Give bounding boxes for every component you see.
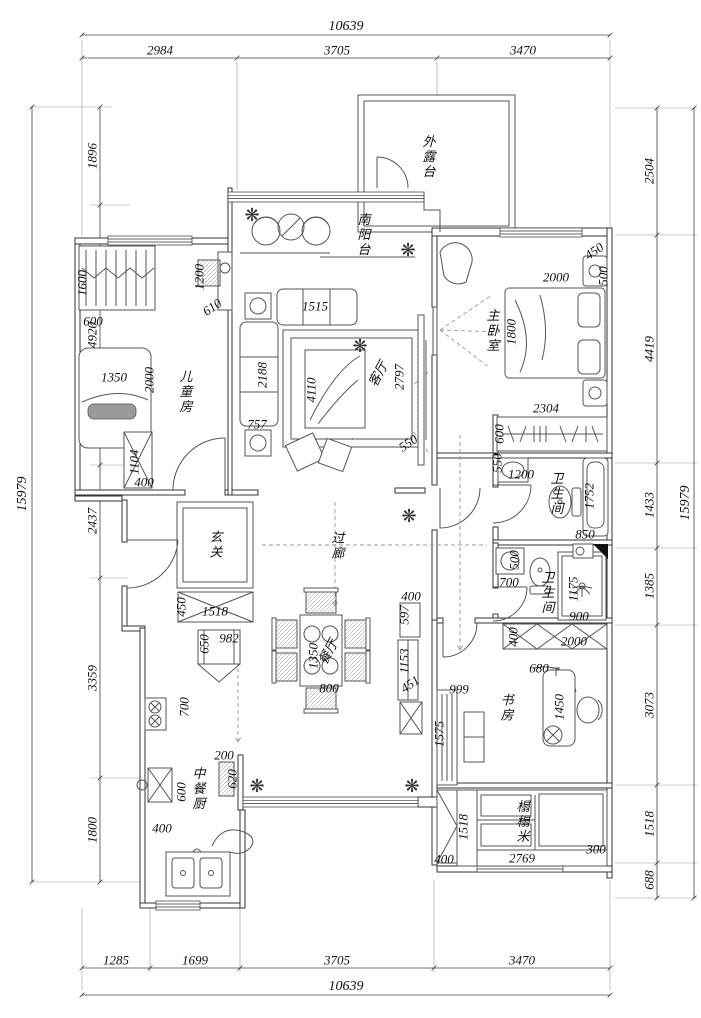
dim-inner: 700: [178, 697, 191, 717]
dim-inner: 2000: [143, 367, 156, 393]
dim-inner: 700: [499, 576, 519, 589]
dim-inner: 850: [575, 528, 595, 541]
dim-inner: 400: [401, 590, 421, 603]
dim-right-seg: 1433: [643, 492, 656, 518]
dim-top-total: 10639: [329, 20, 364, 34]
furniture-master: [440, 243, 607, 451]
dim-inner: 1175: [567, 576, 580, 601]
dim-top-seg: 3705: [324, 44, 350, 57]
furniture-kitchen: [137, 630, 253, 896]
plant-icon: ❋: [244, 205, 259, 225]
dim-inner: 600: [175, 782, 188, 802]
dim-inner: 1200: [508, 468, 534, 481]
terrace-door: [377, 157, 408, 188]
dim-inner: 2000: [543, 271, 569, 284]
dim-inner: 400: [507, 627, 520, 647]
bath-upper-door: [493, 485, 531, 523]
dining-window: [243, 797, 418, 807]
dim-inner: 2000: [561, 635, 587, 648]
dim-inner: 200: [214, 749, 234, 762]
dim-left-seg: 2437: [86, 508, 99, 534]
dim-top-seg: 3470: [510, 44, 536, 57]
dim-left-seg: 1896: [86, 143, 99, 169]
floor-plan-drawing: ❋ ❋ ❋ ❋ ❋ ❋: [0, 0, 701, 1018]
dim-inner: 1600: [76, 270, 89, 296]
dim-right-seg: 688: [643, 870, 656, 890]
room-label-study: 书房: [500, 693, 513, 723]
dim-top-seg: 2984: [147, 44, 173, 57]
dim-right-seg: 1385: [643, 573, 656, 599]
dim-inner: 450: [175, 597, 188, 617]
floor-plan: ❋ ❋ ❋ ❋ ❋ ❋ 10639 2984 3705 3470 1285 16…: [0, 0, 701, 1018]
plant-icon: ❋: [249, 776, 264, 796]
kids-window: [108, 236, 192, 245]
dim-inner: 1104: [128, 449, 141, 474]
plant-icon: ❋: [400, 240, 415, 260]
dim-left-total: 15979: [16, 477, 30, 512]
dim-bottom-seg: 1285: [103, 954, 129, 967]
dim-right-seg: 3073: [643, 692, 656, 718]
dim-inner: 1515: [302, 300, 328, 313]
dim-inner: 500: [597, 266, 610, 286]
dim-right-seg: 2504: [643, 158, 656, 184]
dim-bottom-seg: 3705: [324, 954, 350, 967]
dim-right-total: 15979: [679, 486, 693, 521]
balcony-sliding-door: [240, 253, 415, 257]
dim-inner: 1350: [101, 371, 127, 384]
furniture-balcony: [252, 214, 330, 245]
kids-door: [173, 438, 225, 490]
plant-icon: ❋: [404, 776, 419, 796]
dim-inner: 1350: [307, 643, 320, 669]
dim-inner: 600: [493, 424, 506, 444]
dim-inner: 400: [434, 853, 454, 866]
dim-right-seg: 4419: [643, 336, 656, 362]
room-label-kitchen: 中餐厨: [192, 767, 205, 812]
room-label-hall: 过廊: [331, 531, 344, 561]
kitchen-window: [156, 901, 200, 910]
dim-inner: 650: [198, 634, 211, 654]
dim-inner: 550: [491, 453, 504, 473]
master-window: [500, 228, 582, 237]
dim-inner: 1752: [583, 483, 596, 509]
dim-inner: 300: [586, 843, 606, 856]
dim-left-seg: 3359: [86, 665, 99, 691]
dim-inner: 1518: [202, 605, 228, 618]
dim-inner: 600: [83, 315, 103, 328]
dim-inner: 4110: [305, 377, 318, 402]
dim-inner: 680: [529, 662, 549, 675]
dim-bottom-total: 10639: [329, 980, 364, 994]
dim-inner: 1450: [553, 694, 566, 720]
dim-inner: 999: [449, 683, 469, 696]
dim-inner: 2797: [393, 364, 406, 390]
dim-inner: 1518: [457, 814, 470, 840]
dim-inner: 2769: [509, 852, 535, 865]
dim-left-seg: 1800: [86, 817, 99, 843]
dim-right-seg: 1518: [643, 811, 656, 837]
dim-inner: 620: [226, 769, 239, 789]
plant-icon: ❋: [352, 336, 367, 356]
room-label-master: 主卧室: [486, 309, 499, 354]
dim-inner: 1800: [505, 319, 518, 345]
dim-inner: 1200: [193, 264, 206, 290]
dim-inner: 597: [398, 605, 411, 625]
dim-bottom-seg: 1699: [182, 954, 208, 967]
room-label-entry: 玄关: [209, 530, 222, 560]
room-label-tatami: 榻榻米: [516, 800, 529, 845]
dim-inner: 400: [152, 822, 172, 835]
dim-inner: 1153: [398, 648, 411, 673]
room-label-balcony: 南阳台: [357, 213, 370, 258]
room-label-kids: 儿童房: [179, 370, 192, 415]
dim-inner: 1575: [433, 721, 446, 747]
master-door: [433, 307, 437, 355]
dim-bottom-seg: 3470: [509, 954, 535, 967]
dim-inner: 900: [569, 610, 589, 623]
dim-inner: 2304: [533, 402, 559, 415]
room-label-bath-lower: 卫生间: [541, 571, 554, 616]
dim-inner: 500: [508, 550, 521, 570]
room-label-terrace: 外露台: [422, 135, 435, 180]
dim-inner: 757: [247, 418, 267, 431]
dim-inner: 400: [134, 476, 154, 489]
plant-icon: ❋: [401, 506, 416, 526]
entry-door: [127, 540, 178, 588]
dim-inner: 982: [219, 632, 239, 645]
dim-inner: 2188: [256, 362, 269, 388]
dim-inner: 800: [319, 682, 339, 695]
room-label-bath-upper: 卫生间: [550, 472, 563, 517]
